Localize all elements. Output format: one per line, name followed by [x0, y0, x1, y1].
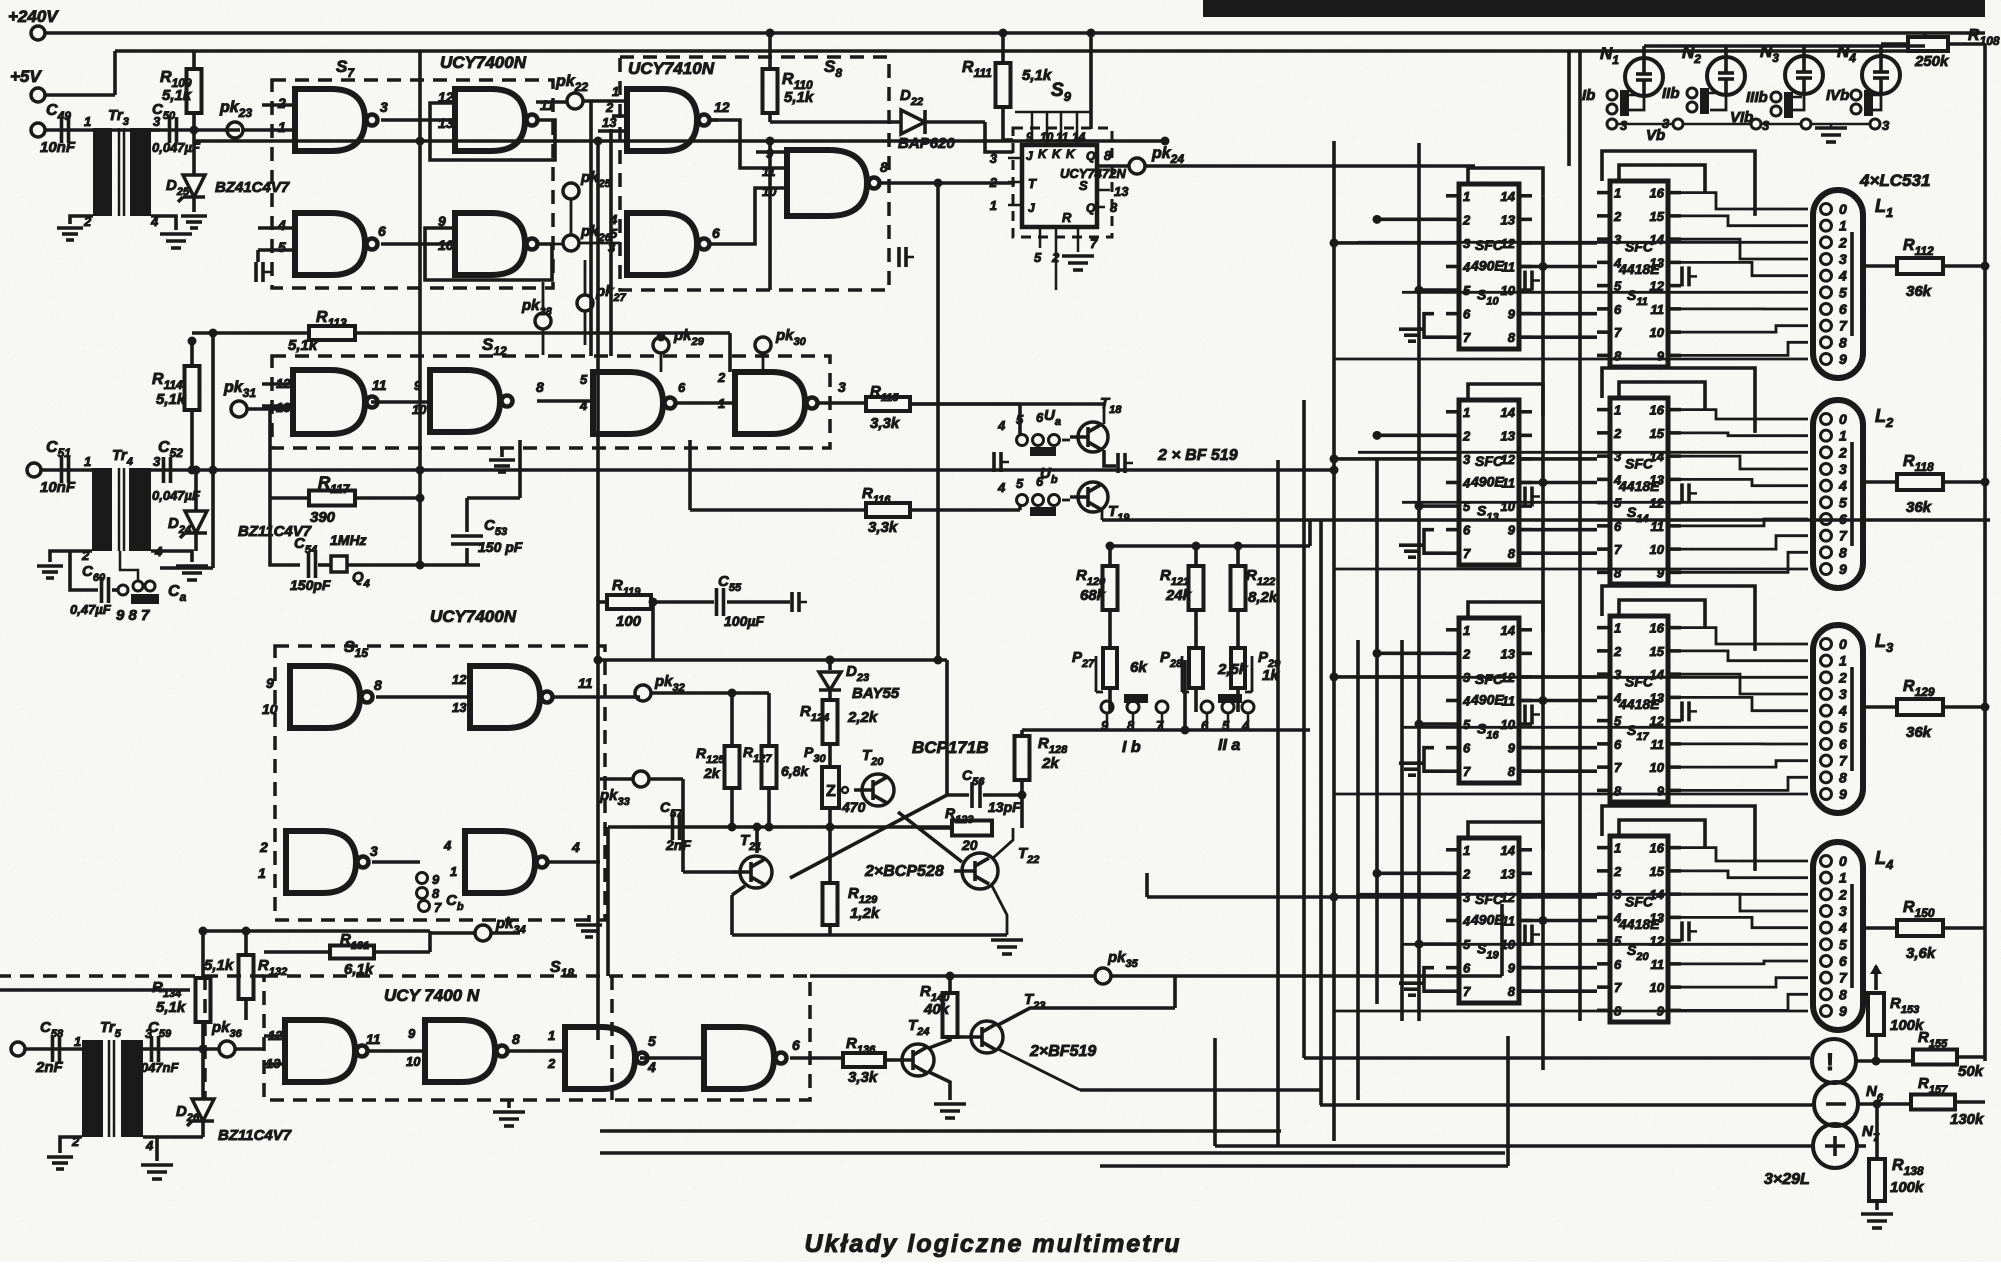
- svg-text:8: 8: [512, 1031, 520, 1047]
- svg-text:1: 1: [1463, 623, 1470, 638]
- svg-text:13: 13: [1501, 428, 1516, 443]
- svg-text:10: 10: [1501, 717, 1516, 732]
- svg-text:150pF: 150pF: [290, 577, 331, 593]
- svg-text:1: 1: [1839, 218, 1847, 234]
- svg-text:6: 6: [378, 223, 386, 239]
- svg-text:10: 10: [438, 237, 454, 253]
- svg-text:4: 4: [997, 480, 1006, 495]
- svg-text:0: 0: [1839, 853, 1847, 869]
- svg-text:24k: 24k: [1165, 587, 1192, 604]
- svg-text:11: 11: [1651, 957, 1665, 972]
- svg-text:4: 4: [1838, 703, 1847, 719]
- svg-text:1: 1: [1463, 189, 1470, 204]
- svg-text:36k: 36k: [1906, 283, 1932, 300]
- svg-text:11: 11: [372, 377, 387, 393]
- svg-text:8: 8: [1508, 330, 1516, 345]
- svg-text:3×29L: 3×29L: [1764, 1171, 1810, 1188]
- svg-text:4418E: 4418E: [1618, 261, 1660, 277]
- svg-text:10nF: 10nF: [40, 139, 76, 156]
- svg-text:2: 2: [1462, 212, 1471, 227]
- svg-text:SFC: SFC: [1625, 894, 1654, 910]
- svg-text:1: 1: [1839, 653, 1847, 669]
- svg-text:Układy logiczne multimetru: Układy logiczne multimetru: [804, 1230, 1181, 1258]
- svg-text:250k: 250k: [1914, 53, 1949, 70]
- svg-text:2: 2: [1838, 669, 1847, 685]
- svg-text:1: 1: [1839, 870, 1847, 886]
- svg-text:7: 7: [1839, 528, 1848, 544]
- svg-text:1: 1: [1614, 621, 1621, 636]
- svg-text:5: 5: [610, 226, 618, 241]
- svg-text:1k: 1k: [1262, 667, 1279, 684]
- svg-text:5: 5: [1463, 717, 1471, 732]
- svg-text:9: 9: [1101, 718, 1109, 733]
- svg-text:UCY7472N: UCY7472N: [1060, 166, 1126, 181]
- svg-text:8: 8: [1508, 764, 1516, 779]
- svg-text:6: 6: [1839, 953, 1847, 969]
- svg-text:8: 8: [1839, 544, 1847, 560]
- svg-text:3,3k: 3,3k: [870, 415, 900, 432]
- svg-text:Ib: Ib: [1582, 87, 1595, 104]
- svg-text:8: 8: [1110, 200, 1118, 215]
- svg-text:3: 3: [1882, 118, 1890, 133]
- svg-text:2: 2: [277, 95, 286, 111]
- svg-text:4: 4: [997, 418, 1006, 433]
- svg-text:3: 3: [608, 240, 616, 255]
- svg-text:5: 5: [1839, 494, 1847, 510]
- svg-text:7: 7: [1614, 760, 1622, 775]
- svg-text:4: 4: [1462, 694, 1471, 709]
- svg-text:390: 390: [310, 509, 336, 526]
- svg-text:1: 1: [612, 84, 619, 99]
- svg-text:0,47µF: 0,47µF: [70, 602, 112, 617]
- svg-text:Z: Z: [826, 783, 836, 800]
- svg-text:2,2k: 2,2k: [847, 709, 878, 726]
- svg-text:6: 6: [1463, 523, 1471, 538]
- svg-text:7: 7: [1463, 984, 1471, 999]
- svg-text:14: 14: [1501, 189, 1516, 204]
- svg-text:16: 16: [1650, 186, 1665, 201]
- svg-text:2k: 2k: [1041, 755, 1059, 772]
- svg-text:2: 2: [989, 175, 998, 190]
- svg-text:5,1k: 5,1k: [784, 89, 814, 106]
- svg-text:3,6k: 3,6k: [1906, 945, 1936, 962]
- svg-text:3: 3: [1463, 452, 1471, 467]
- svg-text:3: 3: [1839, 251, 1847, 267]
- svg-text:20: 20: [961, 837, 978, 853]
- svg-text:6: 6: [1463, 741, 1471, 756]
- svg-text:9: 9: [414, 378, 422, 393]
- svg-text:2: 2: [1462, 646, 1471, 661]
- svg-text:3: 3: [838, 379, 846, 395]
- svg-text:100k: 100k: [1890, 1179, 1924, 1196]
- svg-text:T: T: [1028, 176, 1037, 191]
- svg-text:6k: 6k: [1130, 659, 1147, 676]
- svg-text:4: 4: [145, 1138, 154, 1153]
- svg-text:2: 2: [717, 370, 726, 385]
- svg-text:10: 10: [1650, 980, 1665, 995]
- svg-text:1: 1: [258, 865, 266, 881]
- svg-text:9: 9: [1508, 523, 1516, 538]
- svg-text:10: 10: [1650, 325, 1665, 340]
- svg-text:3: 3: [1620, 118, 1628, 133]
- svg-text:2: 2: [1462, 428, 1471, 443]
- svg-text:3,3k: 3,3k: [848, 1069, 878, 1086]
- svg-text:4: 4: [647, 1059, 656, 1075]
- svg-text:16: 16: [1650, 621, 1665, 636]
- svg-text:15: 15: [1650, 209, 1665, 224]
- svg-text:9: 9: [1508, 741, 1516, 756]
- svg-text:7: 7: [1090, 236, 1098, 251]
- svg-text:10: 10: [412, 402, 427, 417]
- svg-text:IIb: IIb: [1662, 85, 1680, 102]
- svg-text:UCY7400N: UCY7400N: [430, 607, 517, 626]
- svg-text:13: 13: [1114, 184, 1129, 199]
- svg-text:UCY7410N: UCY7410N: [628, 59, 715, 78]
- svg-text:10: 10: [406, 1054, 421, 1069]
- svg-text:2: 2: [605, 100, 614, 115]
- svg-text:2: 2: [1613, 644, 1622, 659]
- svg-text:2×BCP528: 2×BCP528: [864, 863, 944, 880]
- svg-text:1: 1: [548, 1028, 555, 1043]
- svg-text:13: 13: [452, 700, 467, 715]
- svg-text:1: 1: [1614, 403, 1621, 418]
- svg-text:2,5k: 2,5k: [1217, 661, 1248, 678]
- svg-text:11: 11: [540, 97, 555, 113]
- svg-text:5,1k: 5,1k: [162, 87, 192, 104]
- svg-text:3: 3: [1762, 118, 1770, 133]
- svg-text:13: 13: [1501, 866, 1516, 881]
- svg-text:2: 2: [259, 839, 268, 855]
- svg-text:10nF: 10nF: [40, 479, 76, 496]
- svg-text:5: 5: [1839, 936, 1847, 952]
- svg-text:11: 11: [578, 675, 593, 691]
- svg-text:6: 6: [1614, 737, 1622, 752]
- svg-text:68k: 68k: [1080, 587, 1106, 604]
- svg-text:3: 3: [990, 151, 998, 166]
- svg-text:130k: 130k: [1950, 1111, 1984, 1128]
- svg-text:7: 7: [1463, 330, 1471, 345]
- svg-text:10: 10: [262, 701, 278, 717]
- svg-text:8: 8: [374, 677, 382, 693]
- svg-text:490E: 490E: [1470, 692, 1504, 708]
- svg-text:5: 5: [278, 239, 286, 255]
- svg-text:Q: Q: [1086, 149, 1096, 163]
- svg-text:+240V: +240V: [8, 7, 59, 26]
- svg-text:490E: 490E: [1470, 912, 1504, 928]
- svg-text:5,1k: 5,1k: [156, 999, 186, 1016]
- svg-text:J: J: [1026, 149, 1033, 163]
- svg-text:4418E: 4418E: [1618, 916, 1660, 932]
- svg-text:K: K: [1066, 147, 1076, 161]
- svg-text:0: 0: [1839, 411, 1847, 427]
- svg-text:14: 14: [1501, 623, 1516, 638]
- svg-text:4: 4: [571, 839, 580, 855]
- svg-text:Q: Q: [1086, 201, 1096, 215]
- svg-text:4: 4: [443, 838, 452, 853]
- svg-text:150 pF: 150 pF: [478, 539, 523, 555]
- svg-text:3: 3: [380, 99, 388, 115]
- svg-text:3: 3: [1463, 890, 1471, 905]
- svg-text:K: K: [1038, 147, 1048, 161]
- svg-text:11: 11: [1651, 737, 1665, 752]
- svg-text:2: 2: [1613, 209, 1622, 224]
- svg-text:SFC: SFC: [1475, 453, 1504, 469]
- svg-text:7: 7: [1463, 764, 1471, 779]
- svg-text:2×BF519: 2×BF519: [1029, 1043, 1096, 1060]
- svg-text:13pF: 13pF: [988, 799, 1021, 815]
- svg-text:4: 4: [1462, 260, 1471, 275]
- svg-text:IIIb: IIIb: [1746, 89, 1768, 106]
- svg-text:2: 2: [547, 1056, 556, 1071]
- svg-text:!: !: [1826, 1049, 1834, 1076]
- svg-text:4: 4: [1838, 268, 1847, 284]
- svg-text:8: 8: [1508, 984, 1516, 999]
- svg-text:8: 8: [1839, 334, 1847, 350]
- svg-text:14: 14: [1501, 405, 1516, 420]
- svg-text:2: 2: [1613, 864, 1622, 879]
- svg-text:5: 5: [1016, 476, 1024, 491]
- svg-text:1: 1: [84, 114, 91, 129]
- svg-text:1: 1: [1614, 186, 1621, 201]
- svg-text:14: 14: [1501, 843, 1516, 858]
- svg-text:490E: 490E: [1470, 474, 1504, 490]
- svg-text:8: 8: [1839, 769, 1847, 785]
- svg-text:1: 1: [450, 864, 457, 879]
- svg-text:9: 9: [1839, 351, 1847, 367]
- svg-text:5: 5: [1839, 284, 1847, 300]
- svg-text:1: 1: [990, 198, 997, 213]
- svg-text:7: 7: [1463, 546, 1471, 561]
- svg-text:3: 3: [370, 843, 378, 859]
- svg-text:470: 470: [841, 799, 866, 815]
- svg-text:14: 14: [1072, 130, 1086, 144]
- svg-text:6: 6: [712, 225, 720, 241]
- svg-text:8: 8: [1104, 148, 1112, 163]
- svg-text:1: 1: [74, 1034, 81, 1049]
- svg-text:10: 10: [1650, 760, 1665, 775]
- svg-text:490E: 490E: [1470, 258, 1504, 274]
- svg-text:13: 13: [438, 115, 454, 131]
- svg-text:0,047nF: 0,047nF: [130, 1060, 179, 1075]
- svg-text:7: 7: [1839, 753, 1848, 769]
- svg-text:6: 6: [678, 380, 686, 395]
- svg-text:5: 5: [1222, 718, 1230, 733]
- svg-text:10: 10: [1650, 542, 1665, 557]
- svg-text:3: 3: [1614, 232, 1622, 247]
- svg-text:UCY 7400 N: UCY 7400 N: [384, 986, 480, 1005]
- svg-text:12: 12: [1650, 934, 1665, 949]
- svg-text:50k: 50k: [1958, 1063, 1984, 1080]
- svg-text:1MHz: 1MHz: [330, 532, 367, 548]
- svg-text:2nF: 2nF: [35, 1059, 64, 1076]
- svg-text:8: 8: [880, 159, 888, 175]
- svg-text:4: 4: [1838, 920, 1847, 936]
- svg-text:6: 6: [1201, 718, 1209, 733]
- svg-text:5,1k: 5,1k: [156, 391, 186, 408]
- svg-text:100k: 100k: [1890, 1017, 1924, 1034]
- svg-text:3,3k: 3,3k: [868, 519, 898, 536]
- svg-text:40k: 40k: [923, 1001, 950, 1018]
- svg-text:1,2k: 1,2k: [850, 905, 880, 922]
- svg-text:2: 2: [1838, 886, 1847, 902]
- svg-text:8: 8: [1614, 348, 1622, 363]
- svg-text:9: 9: [1657, 783, 1665, 798]
- svg-text:4: 4: [1241, 718, 1250, 733]
- svg-text:11: 11: [1651, 302, 1665, 317]
- svg-text:15: 15: [1650, 644, 1665, 659]
- svg-text:5: 5: [1463, 283, 1471, 298]
- svg-text:10: 10: [1501, 283, 1516, 298]
- svg-text:9: 9: [408, 1026, 416, 1041]
- svg-text:100µF: 100µF: [724, 613, 764, 629]
- svg-text:4: 4: [277, 217, 286, 233]
- svg-text:4: 4: [579, 398, 588, 413]
- svg-text:II a: II a: [1218, 737, 1240, 754]
- svg-text:13: 13: [1501, 212, 1516, 227]
- svg-text:7: 7: [1156, 718, 1164, 733]
- svg-text:10: 10: [1040, 130, 1054, 144]
- svg-text:1: 1: [1839, 428, 1847, 444]
- svg-text:6: 6: [1839, 301, 1847, 317]
- svg-text:9: 9: [432, 872, 440, 887]
- svg-text:0,047µF: 0,047µF: [152, 488, 201, 503]
- svg-text:4×LC531: 4×LC531: [1859, 171, 1930, 190]
- svg-text:8: 8: [432, 886, 440, 901]
- svg-text:5,1k: 5,1k: [288, 337, 318, 354]
- svg-text:I b: I b: [1122, 739, 1141, 756]
- svg-text:0: 0: [1839, 201, 1847, 217]
- svg-text:2: 2: [1838, 234, 1847, 250]
- svg-text:5,1k: 5,1k: [1022, 67, 1052, 84]
- svg-text:4: 4: [609, 212, 618, 227]
- svg-text:7: 7: [1614, 542, 1622, 557]
- svg-text:SFC: SFC: [1625, 456, 1654, 472]
- svg-text:1: 1: [1463, 843, 1470, 858]
- svg-text:UCY7400N: UCY7400N: [440, 53, 527, 72]
- svg-text:BCP171B: BCP171B: [912, 738, 989, 757]
- svg-text:SFC: SFC: [1475, 237, 1504, 253]
- svg-text:6,8k: 6,8k: [781, 763, 809, 779]
- svg-text:6: 6: [1614, 957, 1622, 972]
- svg-text:3: 3: [1839, 686, 1847, 702]
- svg-text:3: 3: [153, 454, 161, 469]
- svg-text:7: 7: [1839, 970, 1848, 986]
- svg-text:5: 5: [1034, 250, 1042, 265]
- svg-text:5: 5: [580, 372, 588, 387]
- svg-text:2nF: 2nF: [665, 837, 691, 853]
- svg-text:+5V: +5V: [10, 67, 42, 86]
- svg-text:11: 11: [366, 1031, 381, 1047]
- svg-text:8: 8: [1127, 718, 1135, 733]
- svg-text:1: 1: [84, 454, 91, 469]
- svg-text:7: 7: [1839, 318, 1848, 334]
- svg-text:8: 8: [1614, 783, 1622, 798]
- svg-text:K: K: [1052, 147, 1062, 161]
- svg-text:1: 1: [1463, 405, 1470, 420]
- svg-text:9 8 7: 9 8 7: [116, 607, 150, 624]
- svg-text:36k: 36k: [1906, 724, 1932, 741]
- svg-text:2k: 2k: [703, 765, 721, 781]
- svg-text:9: 9: [1839, 786, 1847, 802]
- svg-text:9: 9: [1839, 561, 1847, 577]
- svg-text:BAP620: BAP620: [898, 135, 955, 152]
- svg-text:9: 9: [1508, 961, 1516, 976]
- svg-text:13: 13: [1501, 646, 1516, 661]
- svg-text:BAY55: BAY55: [852, 685, 900, 702]
- svg-text:9: 9: [1508, 307, 1516, 322]
- svg-text:1: 1: [278, 119, 286, 135]
- svg-text:3: 3: [1839, 903, 1847, 919]
- svg-text:IVb: IVb: [1826, 87, 1849, 104]
- svg-text:8: 8: [1839, 986, 1847, 1002]
- svg-text:3: 3: [1614, 667, 1622, 682]
- svg-text:5: 5: [648, 1033, 656, 1049]
- svg-text:R: R: [1062, 210, 1072, 225]
- svg-text:4418E: 4418E: [1618, 696, 1660, 712]
- svg-text:6: 6: [1614, 302, 1622, 317]
- svg-text:6: 6: [1463, 307, 1471, 322]
- svg-text:BZ41C4V7: BZ41C4V7: [215, 179, 290, 196]
- svg-text:5: 5: [1839, 719, 1847, 735]
- svg-text:2 × BF 519: 2 × BF 519: [1157, 447, 1238, 464]
- svg-text:SFC: SFC: [1475, 671, 1504, 687]
- svg-text:4: 4: [1838, 478, 1847, 494]
- svg-text:16: 16: [1650, 841, 1665, 856]
- svg-text:2: 2: [1613, 426, 1622, 441]
- svg-text:9: 9: [1657, 348, 1665, 363]
- svg-text:11: 11: [1056, 130, 1069, 144]
- svg-text:5: 5: [1614, 934, 1622, 949]
- svg-text:4: 4: [1462, 914, 1471, 929]
- svg-text:9: 9: [266, 675, 274, 691]
- svg-text:7: 7: [434, 900, 442, 915]
- svg-text:7: 7: [1614, 325, 1622, 340]
- svg-text:100: 100: [616, 613, 642, 630]
- svg-text:6: 6: [792, 1037, 800, 1053]
- svg-text:0: 0: [1839, 636, 1847, 652]
- svg-text:8: 8: [536, 379, 544, 395]
- svg-text:6: 6: [1036, 410, 1044, 425]
- svg-text:4: 4: [1462, 476, 1471, 491]
- svg-text:15: 15: [1650, 426, 1665, 441]
- svg-text:36k: 36k: [1906, 499, 1932, 516]
- svg-text:15: 15: [1650, 864, 1665, 879]
- svg-text:2: 2: [1838, 444, 1847, 460]
- svg-text:6: 6: [1839, 736, 1847, 752]
- svg-text:16: 16: [1650, 403, 1665, 418]
- svg-text:6: 6: [1463, 961, 1471, 976]
- svg-text:5,1k: 5,1k: [204, 957, 234, 974]
- svg-text:7: 7: [1614, 980, 1622, 995]
- svg-text:12: 12: [714, 99, 730, 115]
- svg-text:4418E: 4418E: [1618, 478, 1660, 494]
- svg-text:9: 9: [1026, 130, 1033, 144]
- svg-text:12: 12: [452, 672, 467, 687]
- svg-text:BZ11C4V7: BZ11C4V7: [218, 1127, 292, 1144]
- svg-text:3: 3: [1839, 461, 1847, 477]
- svg-text:2: 2: [1462, 866, 1471, 881]
- svg-text:8: 8: [1508, 546, 1516, 561]
- svg-text:8,2k: 8,2k: [1248, 589, 1278, 606]
- svg-text:1: 1: [1614, 841, 1621, 856]
- svg-text:J: J: [1028, 201, 1035, 215]
- svg-text:9: 9: [1839, 1003, 1847, 1019]
